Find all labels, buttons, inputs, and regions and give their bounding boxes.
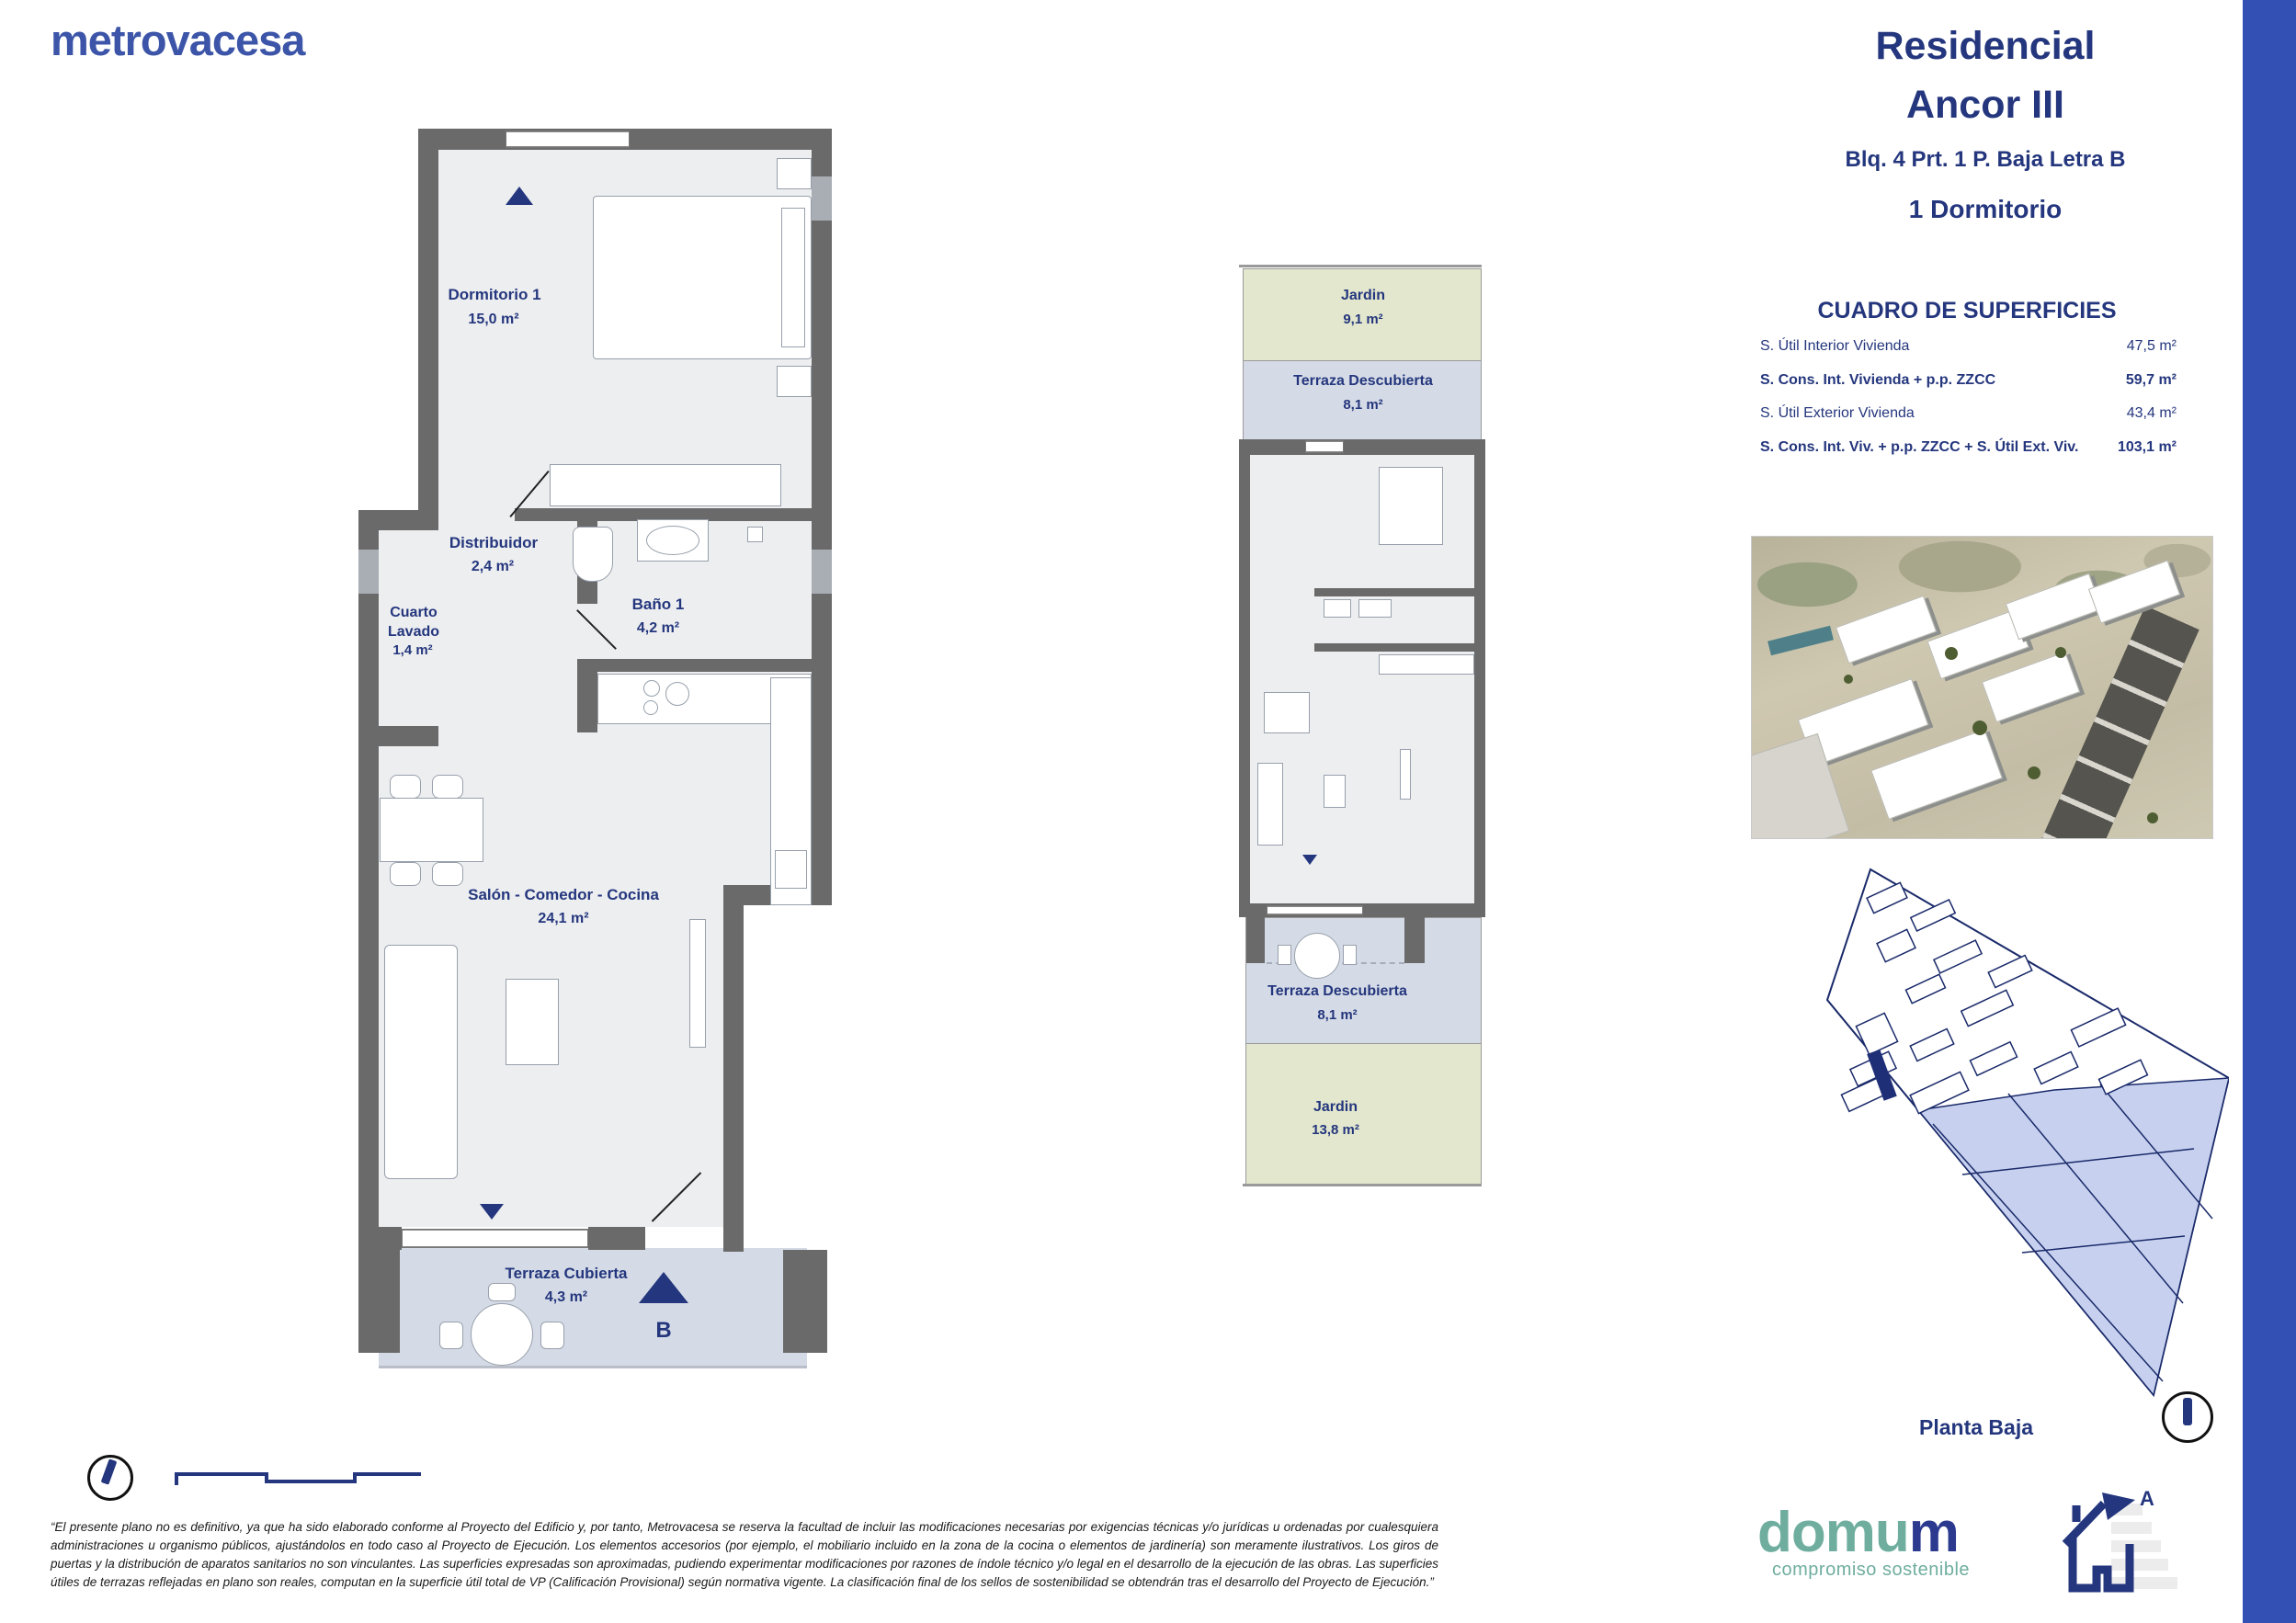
domum-logo-part2: m [1909,1501,1959,1564]
wall-pillar [1404,917,1425,963]
stove-burner [665,682,689,706]
wall-pillar [783,1250,827,1353]
label-jardin-top: Jardin [1341,288,1385,304]
dining-chair [390,862,421,886]
energy-letter-label: A [2140,1487,2154,1510]
scale-bar [175,1467,425,1489]
mini-exit-triangle [1302,855,1317,865]
palm-tree [1844,675,1853,684]
wall-segment [723,905,744,1252]
room-label-cuarto-lavado: Cuarto [390,605,438,621]
wall-pillar [358,1250,400,1353]
nightstand [777,158,812,189]
dining-chair [432,862,463,886]
wall-segment [379,1227,402,1250]
sink-basin [646,526,699,555]
label-terraza-top: Terraza Descubierta [1293,373,1433,390]
wall-segment [597,659,812,672]
palm-tree [1972,721,1987,735]
area-jardin-top: 9,1 m² [1343,312,1382,327]
legal-disclaimer: “El presente plano no es definitivo, ya … [51,1518,1438,1592]
nightstand [777,366,812,397]
window [1305,440,1344,453]
unit-reference: Blq. 4 Prt. 1 P. Baja Letra B [1845,147,2125,173]
smallplan-jardin-bottom [1245,1043,1482,1185]
domum-logo-part1: domu [1757,1501,1909,1564]
bed [593,196,812,359]
mini-kitchen-counter [1379,654,1474,675]
surface-row-label: S. Cons. Int. Vivienda + p.p. ZZCC [1760,372,1995,389]
wall-segment [577,659,597,732]
wall-segment [418,129,438,521]
smallplan-fence [1243,1184,1482,1186]
domum-logo: domum compromiso sostenible [1757,1500,1970,1581]
mini-bed [1379,467,1443,545]
mini-terrace-table [1294,933,1340,979]
surface-row-value: 47,5 m² [2127,338,2177,355]
compass-needle [2183,1398,2192,1425]
domum-tagline: compromiso sostenible [1772,1560,1970,1581]
surface-row-value: 103,1 m² [2118,439,2177,456]
smallplan-fence [1239,265,1482,267]
mini-coffee-table [1324,775,1346,808]
sofa [384,945,458,1179]
label-terraza-bottom: Terraza Descubierta [1267,983,1407,1000]
mini-sofa [1257,763,1283,846]
palm-tree [2055,647,2066,658]
area-terraza-bottom: 8,1 m² [1317,1007,1357,1023]
tv-unit [689,919,706,1048]
energy-rating-icon: A [2045,1478,2183,1611]
site-plan [1824,862,2229,1400]
surface-row-label: S. Útil Interior Vivienda [1760,338,1909,355]
dining-chair [390,775,421,799]
smallplan-terraza-bottom [1245,917,1482,1045]
exit-marker-triangle [480,1204,504,1220]
unit-letter-triangle [639,1272,688,1303]
mini-bath-fixture [1324,599,1351,618]
surfaces-table-title: CUADRO DE SUPERFICIES [1817,298,2116,324]
terrace-chair [540,1322,564,1349]
palm-tree [2028,766,2040,779]
wall-pillar-light [358,550,379,594]
wall-segment [1314,643,1474,652]
surface-row-label: S. Útil Exterior Vivienda [1760,405,1915,422]
terrace-chair [488,1283,516,1301]
wall-segment [1239,439,1485,455]
wall-segment [588,1227,645,1250]
terrace-table [471,1303,533,1366]
page-title-line1: Residencial [1876,24,2096,69]
coffee-table [506,979,559,1065]
unit-type: 1 Dormitorio [1909,195,2062,224]
stove-burner [643,680,660,697]
wall-segment [723,1227,744,1250]
wall-segment [1314,588,1474,596]
toilet-paper-holder [747,527,763,542]
room-label-terraza-cubierta: Terraza Cubierta [506,1265,628,1283]
window [402,1229,588,1248]
wall-segment [358,726,438,746]
area-jardin-bottom: 13,8 m² [1312,1122,1359,1138]
label-jardin-bottom: Jardin [1313,1099,1358,1116]
wall-segment [1239,439,1250,916]
building [1870,729,2003,820]
brochure-page: metrovacesa Residencial Ancor III Blq. 4… [0,0,2296,1623]
toilet [573,527,613,582]
surface-row-value: 43,4 m² [2127,405,2177,422]
mini-terrace-chair [1343,945,1357,965]
room-area-salon: 24,1 m² [538,911,588,927]
building [1982,652,2080,722]
accent-side-bar [2243,0,2296,1623]
wall-segment [1474,439,1485,916]
energy-bars [2111,1504,2177,1589]
room-label-distribuidor: Distribuidor [449,534,538,552]
room-label-salon: Salón - Comedor - Cocina [468,886,659,904]
site-plan-caption: Planta Baja [1919,1415,2033,1440]
dining-chair [432,775,463,799]
aerial-render-photo [1751,536,2213,839]
window [506,131,630,148]
room-label-dormitorio: Dormitorio 1 [448,286,540,304]
terrace-edge-line [379,1366,807,1368]
unit-letter-label: B [655,1318,671,1344]
surface-row-label: S. Cons. Int. Viv. + p.p. ZZCC + S. Útil… [1760,439,2078,456]
wall-pillar-light [812,550,832,594]
stove-burner [643,700,658,715]
room-area-dormitorio: 15,0 m² [468,312,518,328]
room-label-cuarto-lavado: Lavado [388,624,439,641]
wall-pillar [1246,917,1265,963]
bed-pillow [781,208,805,347]
room-area-cuarto-lavado: 1,4 m² [392,642,432,658]
palm-tree [2147,812,2158,823]
mini-bath-fixture [1358,599,1392,618]
wardrobe [550,464,781,506]
mini-dining-table [1264,692,1310,733]
terrace-chair [439,1322,463,1349]
page-title-line2: Ancor III [1906,83,2064,128]
palm-tree [1945,647,1958,660]
room-area-distribuidor: 2,4 m² [472,559,514,575]
mini-terrace-chair [1278,945,1291,965]
surface-row-value: 59,7 m² [2126,372,2177,389]
dining-table [380,798,483,862]
wall-segment [358,521,379,1252]
entry-marker-triangle [506,187,533,205]
metrovacesa-logo: metrovacesa [51,15,304,65]
room-label-bano: Baño 1 [632,596,685,614]
kitchen-sink [775,850,807,889]
wall-pillar-light [812,176,832,221]
area-terraza-top: 8,1 m² [1343,397,1382,413]
room-area-bano: 4,2 m² [637,620,679,637]
window [1267,905,1363,915]
room-area-terraza-cubierta: 4,3 m² [545,1289,587,1306]
mini-tv-unit [1400,749,1411,800]
